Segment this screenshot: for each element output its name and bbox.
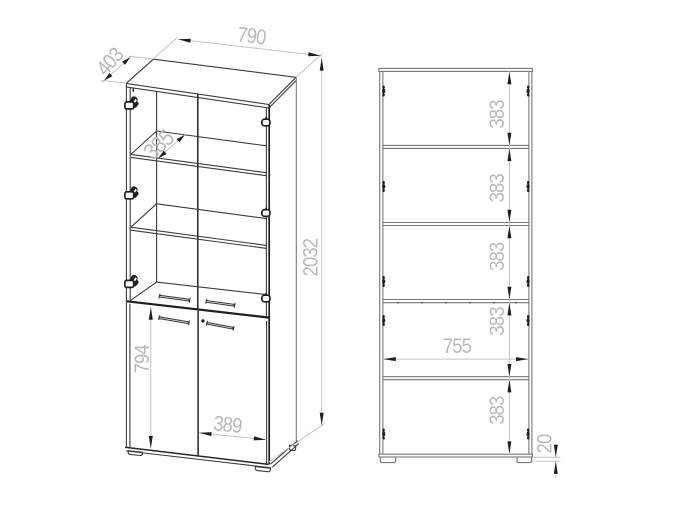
svg-text:383: 383 [486,307,509,336]
svg-text:383: 383 [486,242,509,271]
svg-text:755: 755 [443,335,472,358]
svg-text:389: 389 [212,412,243,438]
svg-text:383: 383 [486,173,509,202]
svg-text:790: 790 [236,23,268,50]
svg-text:794: 794 [131,344,154,373]
svg-text:383: 383 [486,100,509,129]
svg-text:20: 20 [534,434,557,454]
svg-text:2032: 2032 [299,239,322,277]
svg-text:383: 383 [486,396,509,425]
